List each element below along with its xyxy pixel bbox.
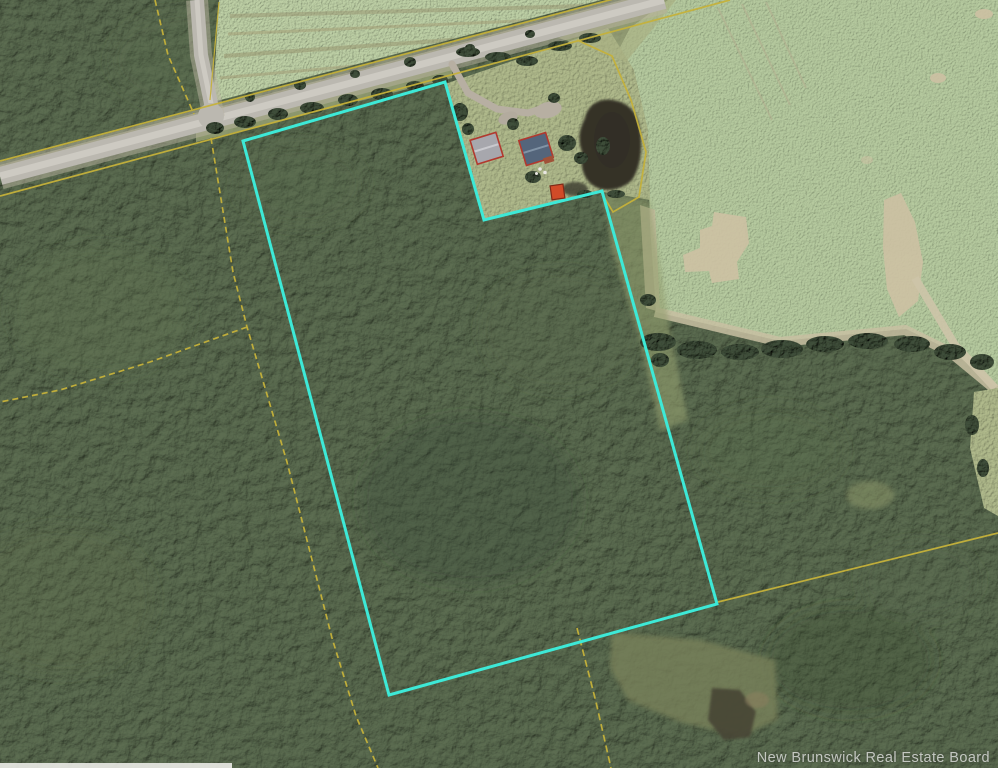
shed (550, 184, 565, 200)
aerial-map: New Brunswick Real Estate Board (0, 0, 998, 768)
aerial-photo (0, 0, 998, 768)
watermark: New Brunswick Real Estate Board (757, 750, 990, 766)
photo-edge-strip (0, 763, 232, 768)
